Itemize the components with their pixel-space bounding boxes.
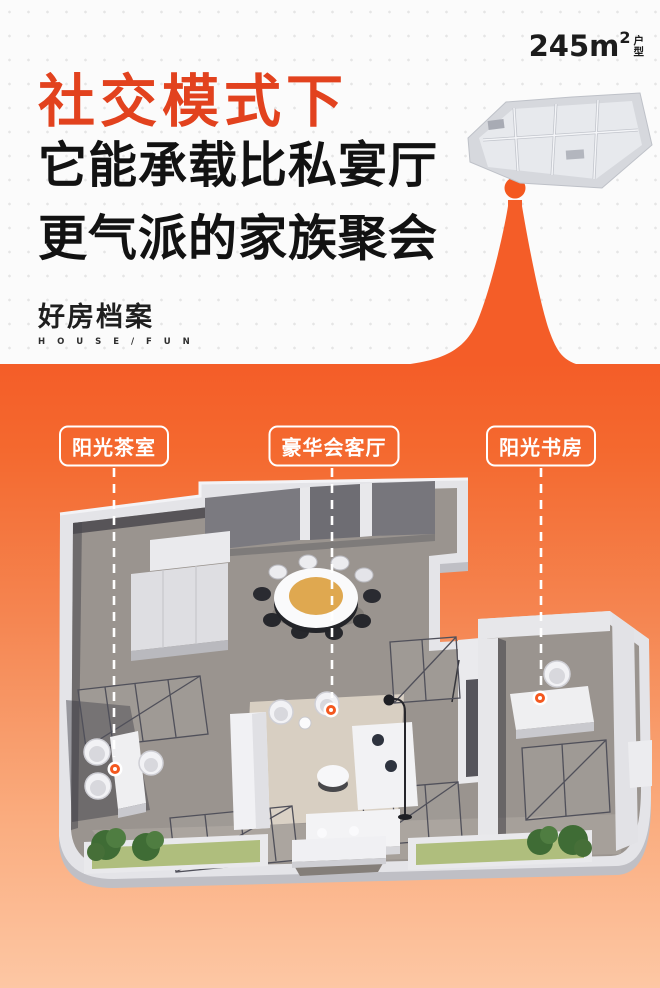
logo-en-text: H O U S E / F U N (38, 337, 194, 347)
logo-cn-text: 好房档案 (38, 304, 194, 331)
area-unit-label: 户 型 (634, 36, 645, 58)
area-value: 245m (529, 32, 620, 61)
mini-floorplan-illustration (468, 93, 652, 188)
poster-canvas: 社交模式下 它能承载比私宴厅 更气派的家族聚会 245m 2 户 型 好房档案 … (0, 0, 660, 988)
location-dot-icon (505, 178, 526, 199)
area-superscript: 2 (619, 30, 630, 46)
headline-line-2: 它能承载比私宴厅 (38, 126, 438, 197)
area-badge: 245m 2 户 型 (529, 32, 644, 61)
area-unit-bottom: 型 (634, 47, 645, 58)
brand-logo: 好房档案 H O U S E / F U N (38, 304, 194, 347)
room-label-reception-hall: 豪华会客厅 (269, 426, 400, 467)
room-label-tea-room: 阳光茶室 (59, 426, 169, 467)
headline-line-3: 更气派的家族聚会 (38, 199, 438, 270)
room-label-study: 阳光书房 (486, 426, 596, 467)
